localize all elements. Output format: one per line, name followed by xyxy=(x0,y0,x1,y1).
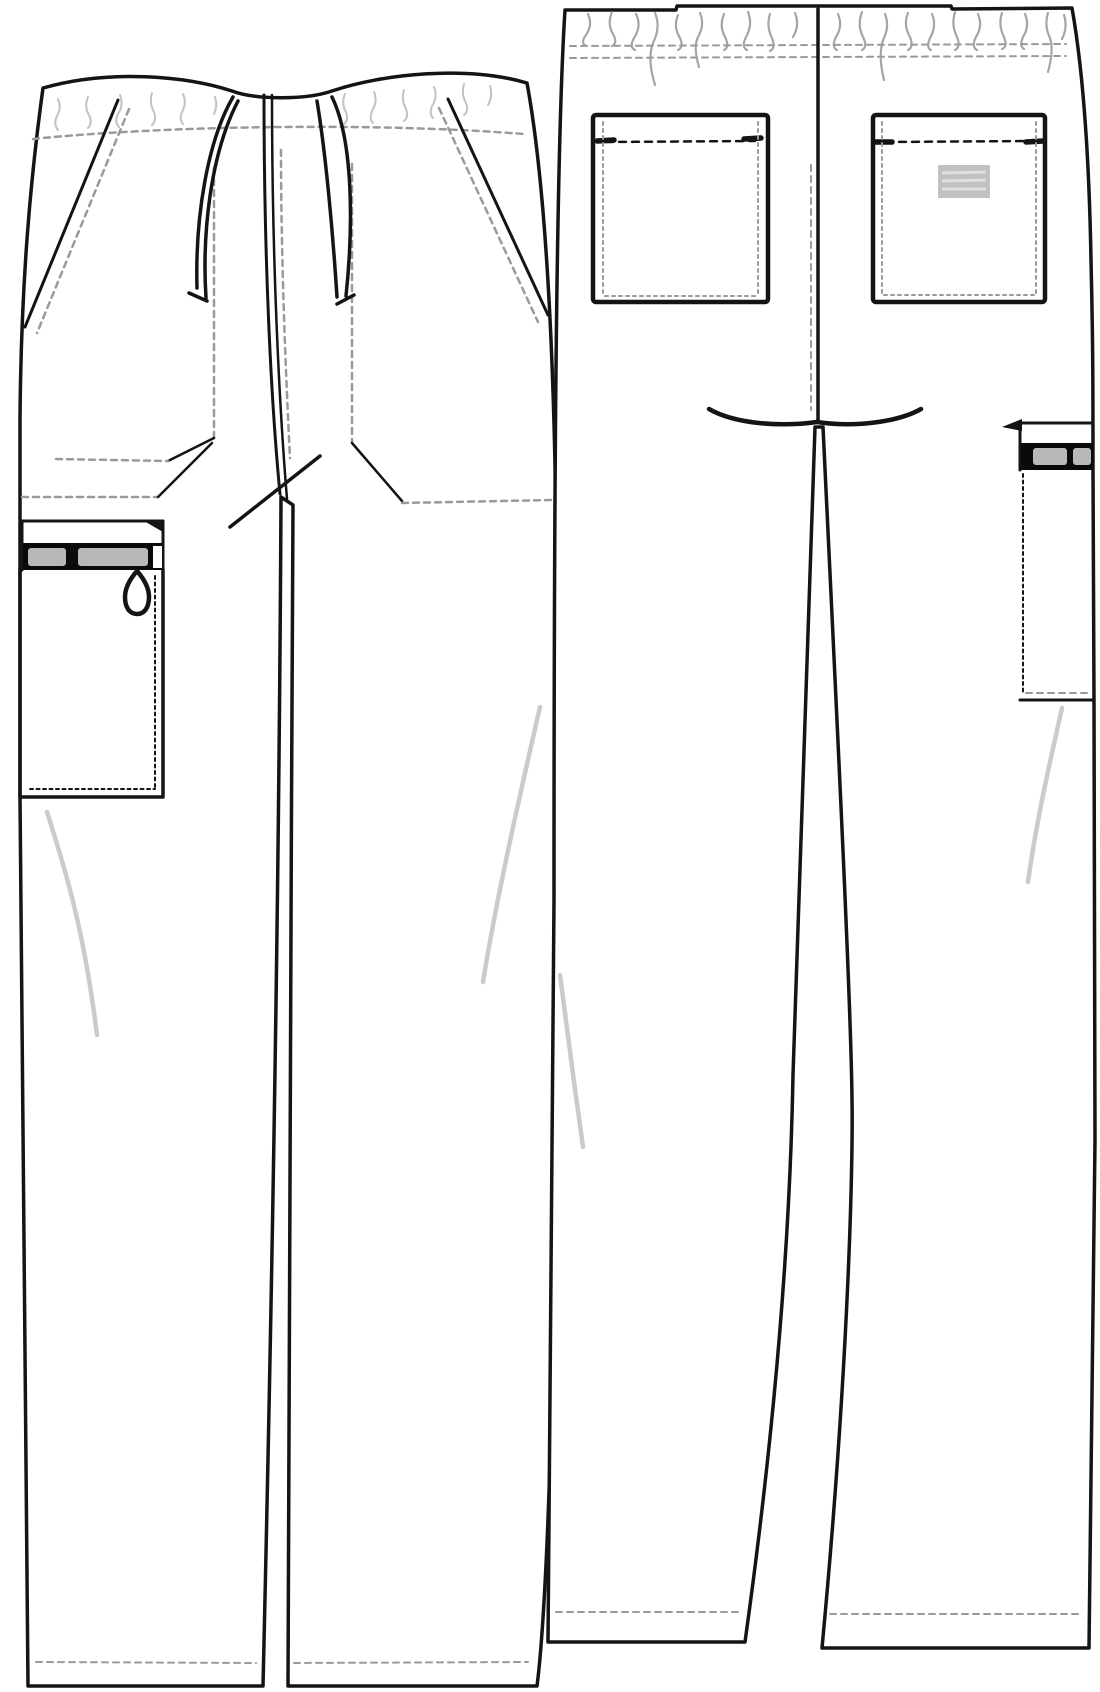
pocket-bartack-left xyxy=(597,140,614,141)
scrub-pants-flat-sketch xyxy=(0,0,1100,1692)
zipper-tape-segment xyxy=(1073,448,1091,465)
pocket-bartack-right xyxy=(1026,141,1043,142)
front-left-hem-stitch xyxy=(36,1662,256,1663)
front-view xyxy=(20,73,557,1686)
back-left-patch-pocket xyxy=(593,115,768,302)
zipper-band-end xyxy=(153,546,162,568)
woven-label xyxy=(938,165,990,198)
front-outline xyxy=(20,73,557,1686)
flat-sketch-canvas xyxy=(0,0,1100,1692)
zipper-tape-segment xyxy=(1033,448,1067,465)
zipper-tape-segment xyxy=(78,548,148,566)
back-right-patch-pocket xyxy=(873,115,1045,302)
back-view xyxy=(548,6,1095,1648)
zipper-tape-segment xyxy=(28,548,66,566)
